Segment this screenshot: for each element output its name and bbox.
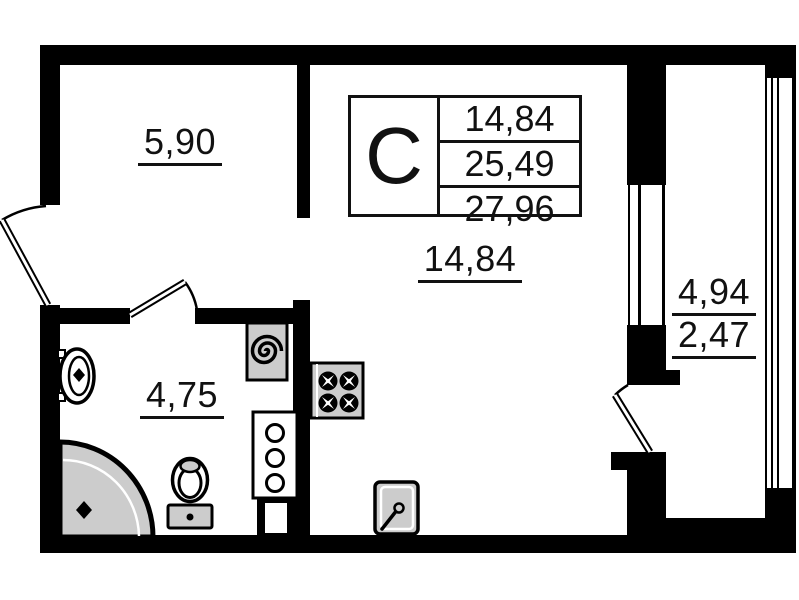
stove-burner <box>319 372 338 391</box>
wall-kitchen-vertical <box>293 300 310 537</box>
entry-door <box>2 206 48 305</box>
floor-plan: C 14,84 25,49 27,96 5,90 14,84 4,75 4,94… <box>0 0 799 600</box>
stove-icon <box>311 363 363 418</box>
shower-icon <box>60 442 153 537</box>
wall-left-upper <box>40 45 60 205</box>
area-stamp: C 14,84 25,49 27,96 <box>348 95 582 217</box>
living-area-label: 14,84 <box>410 238 530 280</box>
balcony-area-total-label: 4,94 <box>654 271 774 313</box>
toilet-icon <box>168 459 212 529</box>
balcony-door-swing-arc <box>615 385 628 395</box>
stamp-total-area: 25,49 <box>440 143 579 188</box>
entry-door-swing-arc <box>2 206 46 220</box>
wall-balcony-door-jamb-lower <box>611 452 627 470</box>
stamp-areas: 14,84 25,49 27,96 <box>440 98 579 214</box>
wall-bathroom-top-left <box>55 308 130 324</box>
balcony-door-leaf <box>615 395 650 452</box>
window-pane-line <box>792 78 796 488</box>
wall-bottom <box>40 535 628 553</box>
wall-hallway-divider <box>297 62 310 218</box>
wall-balcony-left-upper <box>627 65 666 185</box>
washing-machine-icon <box>247 323 287 380</box>
window-pane-line <box>638 185 641 325</box>
wall-balcony-door-jamb-upper <box>666 370 680 385</box>
bathroom-door-swing-arc <box>185 282 197 310</box>
duct-shaft-opening <box>265 503 287 533</box>
window-pane-line <box>628 185 630 325</box>
bathroom-area-label: 4,75 <box>122 374 242 416</box>
window-pane-line <box>777 78 779 488</box>
stamp-letter: C <box>351 98 440 214</box>
stove-burner <box>340 394 359 413</box>
wall-corner-bottom-right <box>765 488 796 553</box>
wall-left-lower <box>40 305 60 553</box>
kitchen-cabinet-icon <box>253 412 297 498</box>
wall-top <box>40 45 796 65</box>
bathroom-door <box>130 282 197 315</box>
stamp-living-area: 14,84 <box>440 98 579 143</box>
wall-balcony-left-lower <box>627 452 666 553</box>
balcony-area-reduced-label: 2,47 <box>654 314 774 356</box>
stove-burner <box>319 394 338 413</box>
entry-door-leaf <box>2 220 48 305</box>
kitchen-sink-icon <box>375 482 418 534</box>
hallway-area-label: 5,90 <box>120 121 240 163</box>
stamp-full-area: 27,96 <box>440 188 579 230</box>
stove-burner <box>340 372 359 391</box>
wall-corner-top-right <box>765 45 796 78</box>
balcony-door <box>615 385 650 452</box>
bathroom-sink-icon <box>58 349 94 403</box>
bathroom-door-leaf <box>130 282 185 315</box>
